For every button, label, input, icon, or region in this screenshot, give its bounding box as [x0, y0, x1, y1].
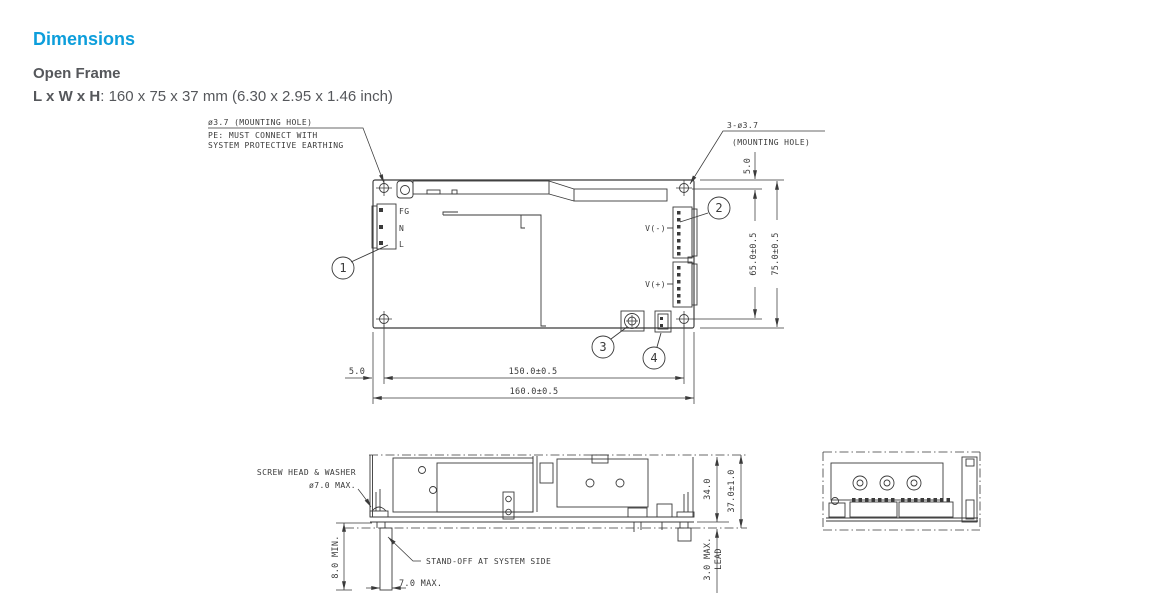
- right-screw: [677, 492, 694, 528]
- dim-lead-1: 3.0 MAX.: [703, 537, 713, 580]
- note-standoff: STAND-OFF AT SYSTEM SIDE: [388, 537, 551, 566]
- svg-text:ø3.7 (MOUNTING HOLE): ø3.7 (MOUNTING HOLE): [208, 118, 312, 127]
- side-view: SCREW HEAD & WASHER ø7.0 MAX. STAND-OFF …: [257, 455, 747, 593]
- heatsink-outline: [443, 212, 546, 326]
- dim-hole-span-v: 65.0±0.5: [749, 232, 759, 275]
- note-pe-line1: PE: MUST CONNECT WITH: [208, 131, 318, 140]
- callout-4: 4: [643, 333, 665, 369]
- pcb-tab: [397, 181, 413, 198]
- ac-input-connector: FG N L: [372, 204, 409, 249]
- end-pcb-lines: [826, 518, 978, 521]
- label-v-minus: V(-): [645, 224, 666, 233]
- svg-text:STAND-OFF AT SYSTEM SIDE: STAND-OFF AT SYSTEM SIDE: [426, 557, 551, 566]
- end-bracket: [962, 457, 977, 522]
- heatsink-flange-top: [413, 181, 667, 201]
- dims-right: 5.0 65.0±0.5 75.0±0.5: [692, 152, 784, 328]
- callout-1: 1: [332, 245, 388, 279]
- dc-output-connector-vplus: V(+): [645, 262, 697, 307]
- right-standoff: [678, 528, 691, 541]
- label-v-plus: V(+): [645, 280, 666, 289]
- mounting-hole-top-right: [676, 180, 692, 196]
- note-mounting-hole-left: ø3.7 (MOUNTING HOLE) PE: MUST CONNECT WI…: [208, 118, 384, 183]
- board-outline: [373, 180, 694, 328]
- dim-board-height: 75.0±0.5: [771, 232, 781, 275]
- dimensions-page: Dimensions Open Frame L x W x H: 160 x 7…: [0, 0, 1159, 602]
- pin-label-n: N: [399, 224, 404, 233]
- dim-overall-height: 37.0±1.0: [727, 469, 737, 512]
- right-heatsink-block: [557, 455, 648, 507]
- svg-text:ø7.0 MAX.: ø7.0 MAX.: [309, 481, 356, 490]
- dim-left-offset: 5.0: [349, 367, 365, 377]
- svg-text:3-ø3.7: 3-ø3.7: [727, 121, 758, 130]
- dim-component-height: 34.0: [703, 478, 713, 500]
- top-view: FG N L V(-): [208, 118, 825, 404]
- dim-standoff-height: 8.0 MIN.: [331, 535, 341, 578]
- left-heatsink-block: [393, 458, 533, 512]
- pcb-side: [370, 517, 694, 522]
- small-component-2: [657, 504, 672, 517]
- mid-divider: [533, 456, 537, 512]
- dim-top-offset: 5.0: [743, 158, 753, 174]
- svg-text:1: 1: [339, 261, 346, 275]
- small-component-1: [628, 508, 647, 517]
- mounting-hole-bottom-right: [676, 311, 692, 327]
- svg-text:2: 2: [715, 201, 722, 215]
- callout-2: 2: [680, 197, 730, 222]
- aux-connector: [655, 311, 671, 332]
- svg-text:3: 3: [599, 340, 606, 354]
- pin-label-l: L: [399, 240, 404, 249]
- terminal-block-1: [850, 498, 897, 517]
- dim-board-width: 160.0±0.5: [510, 387, 559, 397]
- svg-text:4: 4: [650, 351, 657, 365]
- screw-bosses: [853, 476, 921, 490]
- dims-bottom: 5.0 150.0±0.5 160.0±0.5: [345, 325, 694, 404]
- component-leads: [634, 522, 662, 532]
- note-screw-head: SCREW HEAD & WASHER ø7.0 MAX.: [257, 468, 371, 507]
- mounting-hole-bottom-left: [376, 311, 392, 327]
- left-standoff: [380, 528, 392, 590]
- mounting-bracket: [503, 492, 514, 519]
- svg-text:SCREW HEAD & WASHER: SCREW HEAD & WASHER: [257, 468, 356, 477]
- dims-side: 34.0 37.0±1.0 3.0 MAX. LEAD 8.0 MIN. 7.0…: [331, 455, 741, 593]
- note-mounting-hole-right: 3-ø3.7 (MOUNTING HOLE): [690, 121, 825, 184]
- callout-3: 3: [592, 327, 627, 358]
- dc-output-connector-vminus: V(-): [645, 207, 697, 258]
- terminal-block-2: [899, 498, 953, 517]
- dim-standoff-width: 7.0 MAX.: [399, 579, 442, 589]
- dim-hole-span-h: 150.0±0.5: [509, 367, 558, 377]
- dimension-drawing: FG N L V(-): [0, 0, 1159, 602]
- end-view: [823, 452, 980, 530]
- dim-lead-2: LEAD: [714, 548, 724, 570]
- mid-component: [540, 463, 553, 483]
- pin-label-fg: FG: [399, 207, 409, 216]
- end-panel: [831, 463, 943, 500]
- svg-text:(MOUNTING HOLE): (MOUNTING HOLE): [732, 138, 810, 147]
- note-pe-line2: SYSTEM PROTECTIVE EARTHING: [208, 141, 344, 150]
